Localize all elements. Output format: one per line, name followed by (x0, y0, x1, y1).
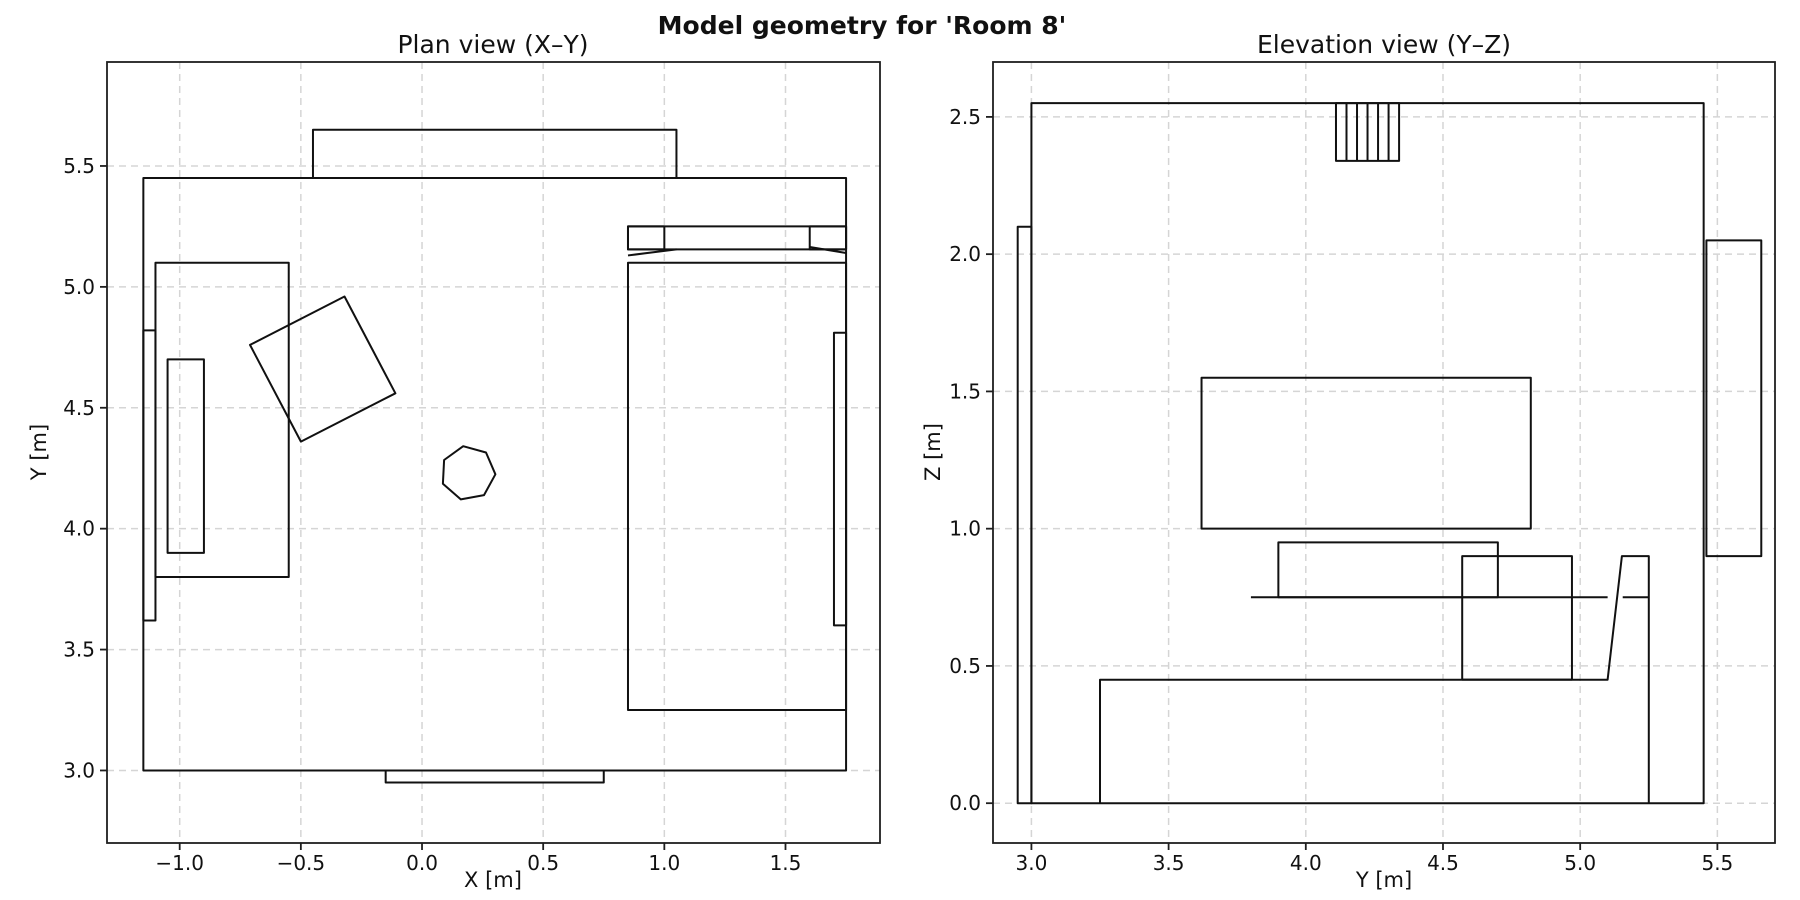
plan-y-axis-label: Y [m] (0, 402, 79, 502)
elevation-x-axis-label: Y [m] (1284, 868, 1484, 892)
axes-background (993, 62, 1775, 843)
x-tick-label: 5.0 (1564, 851, 1596, 875)
elevation-view-title: Elevation view (Y–Z) (1184, 30, 1584, 59)
elevation-view-axes: 3.03.54.04.55.05.50.00.51.01.52.02.5 (949, 62, 1775, 875)
y-tick-label: 0.5 (949, 654, 981, 678)
x-tick-label: 1.5 (770, 851, 802, 875)
y-tick-label: 3.5 (63, 638, 95, 662)
y-tick-label: 5.5 (63, 154, 95, 178)
y-tick-label: 1.5 (949, 379, 981, 403)
plan-x-axis-label: X [m] (393, 868, 593, 892)
elevation-y-axis-label: Z [m] (893, 402, 973, 502)
x-tick-label: 3.0 (1016, 851, 1048, 875)
y-tick-label: 3.0 (63, 758, 95, 782)
figure: −1.0−0.50.00.51.01.53.03.54.04.55.05.53.… (0, 0, 1800, 900)
axes-background (107, 62, 880, 843)
plan-view-title: Plan view (X–Y) (293, 30, 693, 59)
y-tick-label: 1.0 (949, 517, 981, 541)
y-tick-label: 0.0 (949, 791, 981, 815)
plan-view-axes: −1.0−0.50.00.51.01.53.03.54.04.55.05.5 (63, 62, 880, 875)
y-tick-label: 4.0 (63, 517, 95, 541)
x-tick-label: 5.5 (1701, 851, 1733, 875)
x-tick-label: 1.0 (648, 851, 680, 875)
y-tick-label: 5.0 (63, 275, 95, 299)
x-tick-label: −0.5 (277, 851, 326, 875)
x-tick-label: −1.0 (155, 851, 204, 875)
y-tick-label: 2.0 (949, 242, 981, 266)
x-tick-label: 3.5 (1153, 851, 1185, 875)
y-tick-label: 2.5 (949, 105, 981, 129)
